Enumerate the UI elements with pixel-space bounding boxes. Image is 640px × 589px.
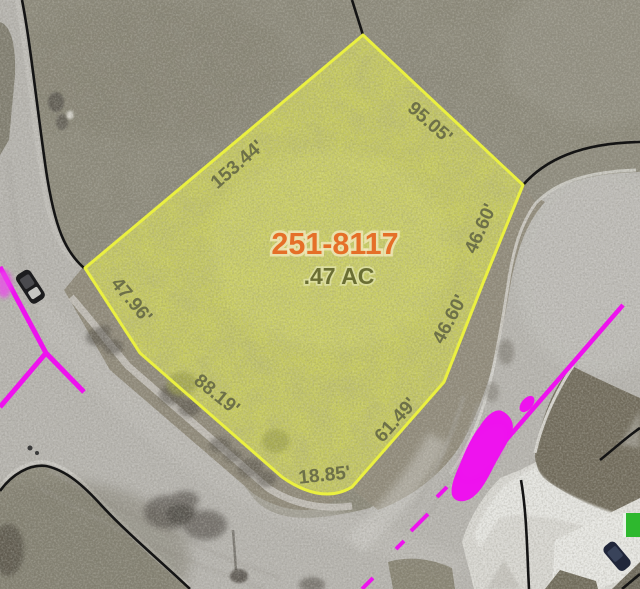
svg-text:.47 AC: .47 AC [304, 263, 375, 289]
svg-text:251-8117: 251-8117 [271, 227, 398, 261]
